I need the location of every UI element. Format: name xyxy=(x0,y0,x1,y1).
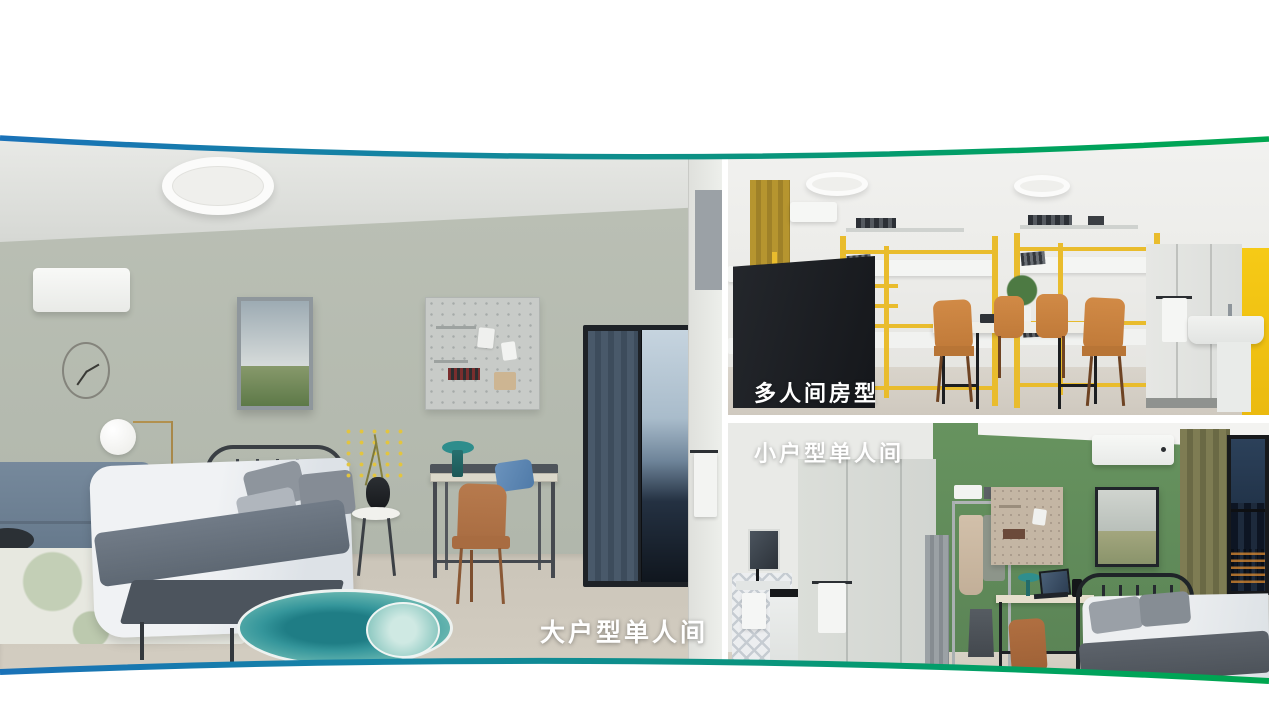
wall-clock xyxy=(62,342,110,399)
bunk-ladder xyxy=(884,246,889,398)
table-leg xyxy=(1058,333,1061,409)
desk-chair-back xyxy=(457,483,507,543)
label-multi-person-room: 多人间房型 xyxy=(754,376,879,408)
storage-box xyxy=(954,485,982,499)
air-conditioner xyxy=(790,202,837,222)
orange-chair xyxy=(1036,294,1068,338)
desk-leg xyxy=(538,482,541,570)
orange-chair xyxy=(933,299,974,351)
desk-chair xyxy=(1008,618,1048,674)
table-rail xyxy=(942,384,979,387)
wardrobe-mirror xyxy=(641,330,690,582)
picture-sky xyxy=(1098,490,1156,531)
wardrobe-curtain xyxy=(588,331,638,581)
pegboard-bag xyxy=(477,327,495,349)
pegboard-shelf xyxy=(999,505,1021,508)
window-mullion xyxy=(1231,509,1265,512)
pegboard-shelf xyxy=(434,360,468,363)
wall-shelf xyxy=(846,228,964,232)
bunk-guard-rail xyxy=(1014,247,1160,251)
towel xyxy=(742,593,766,629)
sink-faucet xyxy=(756,569,759,581)
desk-leg xyxy=(999,602,1002,680)
books xyxy=(856,218,896,228)
towel xyxy=(1162,298,1187,342)
floor-lamp-arm xyxy=(133,421,173,423)
wall-recess xyxy=(695,190,722,290)
pegboard xyxy=(991,487,1063,565)
ac-indicator xyxy=(1161,447,1166,452)
desk-lamp-body xyxy=(452,450,463,477)
pegboard-bag xyxy=(1032,508,1047,526)
pegboard-bag xyxy=(501,341,517,361)
shelf-box xyxy=(1088,216,1104,225)
pegboard-box xyxy=(494,372,516,390)
desk-leg xyxy=(433,482,437,578)
clothes-rack-post xyxy=(952,501,955,667)
yellow-flowers xyxy=(342,426,404,482)
waste-bin xyxy=(968,609,994,657)
slide: 乐璟灵珑系列产品 xyxy=(0,0,1269,714)
photo-small-single-room: 小户型单人间 xyxy=(728,423,1269,686)
ceiling-light xyxy=(806,172,868,196)
ladder-rung xyxy=(872,304,898,308)
white-wardrobe xyxy=(798,459,936,669)
bed-leg xyxy=(230,628,234,662)
chair-leg xyxy=(1038,669,1041,686)
ceiling-light-panel xyxy=(172,166,264,206)
round-teal-rug xyxy=(237,589,453,667)
chair-leg xyxy=(998,336,1001,378)
desk-leg xyxy=(551,482,555,578)
chair-leg xyxy=(1062,336,1065,378)
desk-lamp-stem xyxy=(1026,580,1030,596)
label-large-single-room: 大户型单人间 xyxy=(540,613,708,649)
ceiling-light xyxy=(1014,175,1070,197)
air-conditioner xyxy=(33,268,130,312)
ceiling-light-panel xyxy=(1020,180,1064,192)
window-building-lights xyxy=(1231,549,1265,583)
framed-landscape-picture xyxy=(1095,487,1159,567)
desk-rail xyxy=(433,560,555,563)
ladder-rung xyxy=(872,284,898,288)
page-title: 乐璟灵珑系列产品 xyxy=(90,56,410,111)
desk-top xyxy=(430,473,558,482)
bathroom-mirror xyxy=(748,529,780,571)
photo-multi-person-room: 多人间房型 xyxy=(728,130,1269,415)
chair-leg xyxy=(1016,669,1019,686)
chair-seat xyxy=(934,346,974,356)
photo-large-single-room: 大户型单人间 xyxy=(0,130,722,672)
orange-chair xyxy=(1083,297,1126,351)
chair-seat xyxy=(1082,346,1126,356)
framed-landscape-picture xyxy=(237,297,313,410)
clock-minute-hand xyxy=(76,370,87,385)
bunk-guard-rail xyxy=(840,250,998,254)
sink-pedestal xyxy=(1217,342,1251,412)
vase xyxy=(366,477,390,510)
gray-curtain xyxy=(925,535,949,669)
side-table-top xyxy=(352,507,400,520)
orange-chair xyxy=(994,296,1024,338)
books xyxy=(1028,215,1072,225)
bed-leg xyxy=(1080,673,1083,685)
rug-inner-circle xyxy=(366,602,440,658)
wardrobe-door-seam xyxy=(900,459,902,669)
air-conditioner xyxy=(1092,435,1174,465)
bed-leg xyxy=(140,622,144,660)
wardrobe-door-seam xyxy=(846,459,848,669)
wardrobe-base xyxy=(798,663,936,669)
wall-shelf xyxy=(1020,225,1138,229)
desk-leg xyxy=(445,482,448,570)
pillow xyxy=(1139,591,1192,627)
floor-lamp-globe xyxy=(100,419,136,455)
table-rail xyxy=(1058,384,1097,387)
pegboard-straps xyxy=(448,368,480,380)
picture-land xyxy=(241,366,309,406)
pegboard-straps xyxy=(1003,529,1025,539)
window-sky xyxy=(1231,439,1265,503)
towel xyxy=(818,583,846,633)
table-leg xyxy=(976,333,979,409)
ceiling-light-panel xyxy=(812,177,862,191)
label-small-single-room: 小户型单人间 xyxy=(754,436,904,468)
chair-leg xyxy=(470,550,473,602)
pegboard xyxy=(425,297,540,410)
sink-basin xyxy=(1188,316,1264,344)
hanging-coat xyxy=(959,515,983,595)
picture-sky xyxy=(241,301,309,366)
pegboard-shelf xyxy=(436,326,476,329)
picture-land xyxy=(1098,531,1156,564)
window-city-view xyxy=(1227,435,1269,595)
towel xyxy=(694,453,717,517)
ceiling-light xyxy=(162,157,274,215)
